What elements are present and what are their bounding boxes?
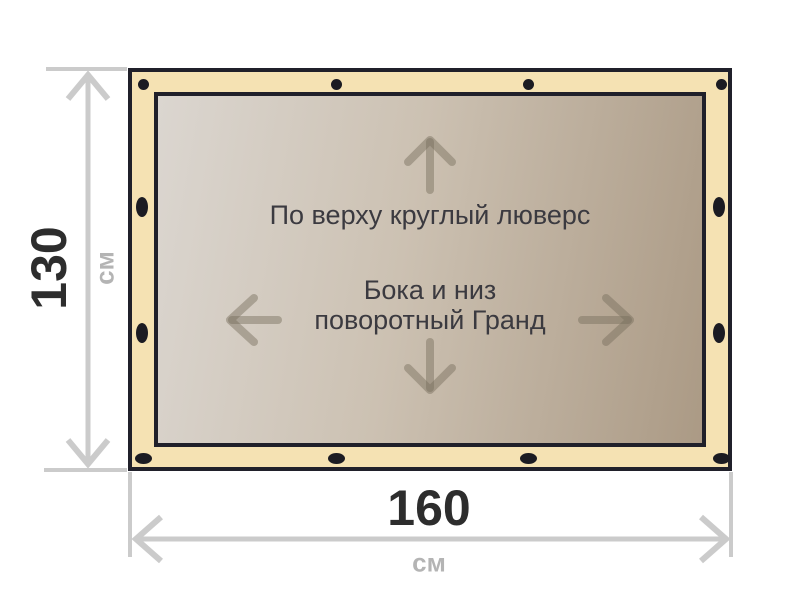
top-grommet-note: По верху круглый люверс: [154, 200, 706, 230]
grommet-right-2: [713, 323, 725, 343]
height-value: 130: [20, 226, 78, 309]
sides-bottom-note: Бока и низ поворотный Гранд: [154, 275, 706, 335]
banner-canvas: [154, 92, 706, 447]
grommet-top-1: [138, 79, 149, 90]
sides-bottom-note-line1: Бока и низ: [154, 275, 706, 305]
width-value: 160: [387, 479, 470, 537]
grommet-top-3: [523, 79, 534, 90]
grommet-left-1: [136, 197, 148, 217]
banner-size-diagram: По верху круглый люверс Бока и низ повор…: [0, 0, 800, 600]
grommet-bottom-3: [520, 453, 537, 464]
width-unit: см: [412, 548, 446, 579]
grommet-bottom-4: [713, 453, 730, 464]
grommet-top-2: [331, 79, 342, 90]
grommet-right-1: [713, 197, 725, 217]
grommet-bottom-2: [328, 453, 345, 464]
banner-outline: [128, 68, 732, 471]
sides-bottom-note-line2: поворотный Гранд: [154, 305, 706, 335]
height-unit: см: [90, 251, 121, 285]
grommet-bottom-1: [135, 453, 152, 464]
grommet-top-4: [716, 79, 727, 90]
grommet-left-2: [136, 323, 148, 343]
